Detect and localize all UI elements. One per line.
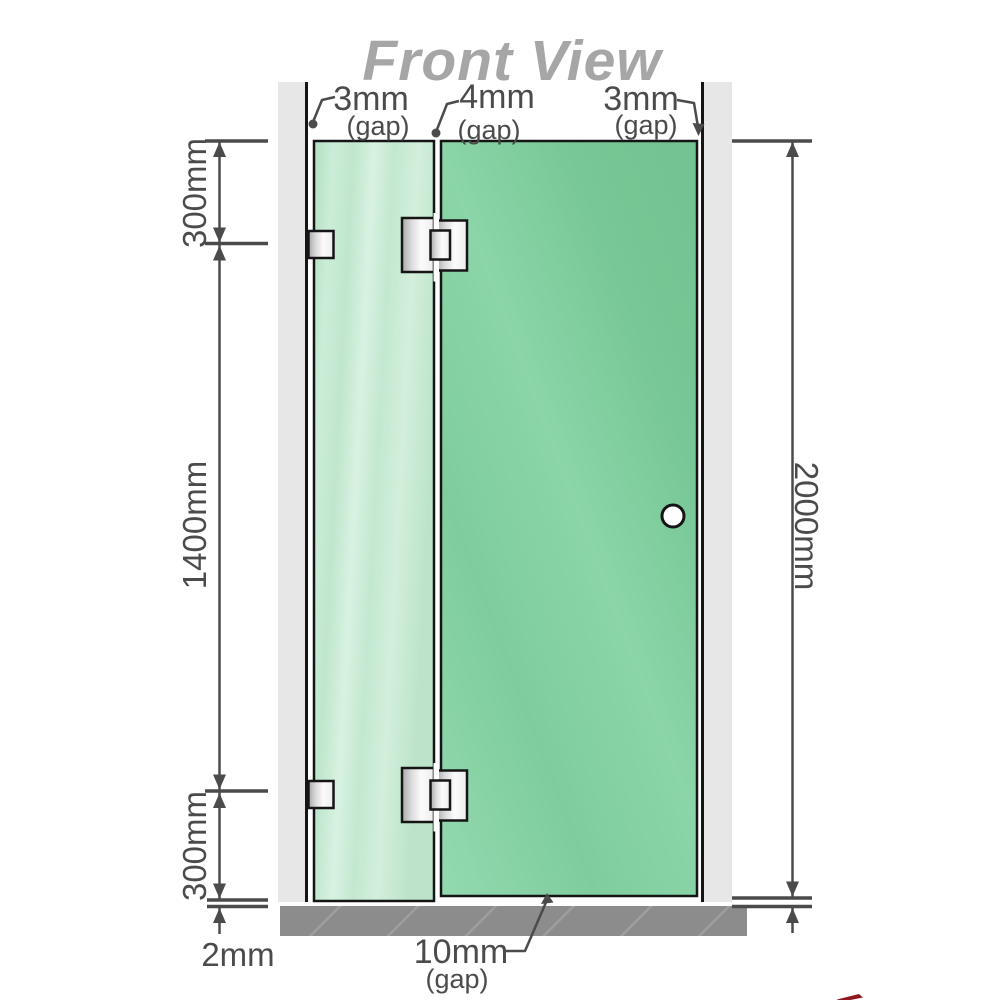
- dim-left-top-300: 300mm: [176, 138, 213, 248]
- dim-floor-clearance-2mm: 2mm: [201, 936, 274, 973]
- leader-gap-top-center: [436, 101, 459, 132]
- gap-top-center-value: 4mm: [459, 78, 535, 116]
- gap-bottom-suffix: (gap): [425, 964, 488, 994]
- hinge-bottom-gap-upper: [434, 763, 440, 781]
- dimension-labels-left: 300mm 1400mm 300mm 2mm: [176, 138, 275, 973]
- gap-top-left-suffix: (gap): [346, 111, 409, 141]
- hinge-top-gap-upper: [434, 213, 440, 231]
- leader-dot-top-left: [309, 120, 318, 129]
- hinge-bottom-panel-plate: [402, 768, 434, 822]
- hinge-bottom-wall-bracket: [309, 781, 334, 808]
- hinge-top-wall-bracket: [309, 231, 334, 258]
- gap-labels-top: 3mm (gap) 4mm (gap) 3mm (gap): [333, 78, 679, 145]
- gap-label-bottom: 10mm (gap): [414, 933, 508, 994]
- gap-top-right-suffix: (gap): [614, 110, 677, 140]
- shower-screen-front-view-diagram: Front View 3mm (gap) 4mm (gap) 3mm (gap)…: [0, 0, 1000, 1000]
- dim-right-overall-2000: 2000mm: [788, 462, 825, 590]
- hinge-top-center: [402, 213, 467, 282]
- hinge-bottom-center: [402, 763, 467, 832]
- gap-top-center-suffix: (gap): [457, 115, 520, 145]
- cropped-logo-red-mark: [837, 994, 863, 1000]
- dim-left-bottom-300: 300mm: [176, 791, 213, 901]
- dim-left-middle-1400: 1400mm: [176, 461, 213, 589]
- diagram-canvas: Front View 3mm (gap) 4mm (gap) 3mm (gap)…: [0, 0, 1000, 1000]
- floor-base: [280, 906, 747, 936]
- wall-right: [704, 82, 732, 902]
- hinge-bottom-knuckle: [431, 781, 451, 810]
- floor-hatch-texture: [280, 906, 747, 936]
- hinge-top-knuckle: [431, 231, 451, 260]
- hinge-top-gap-lower: [434, 260, 440, 282]
- hinge-bottom-gap-lower: [434, 810, 440, 832]
- wall-left: [278, 82, 307, 902]
- leader-dot-top-center: [432, 129, 441, 138]
- door-panel-glass: [441, 141, 697, 896]
- door-handle-knob: [662, 505, 684, 527]
- hinge-top-panel-plate: [402, 218, 434, 272]
- leader-gap-top-left: [313, 97, 335, 122]
